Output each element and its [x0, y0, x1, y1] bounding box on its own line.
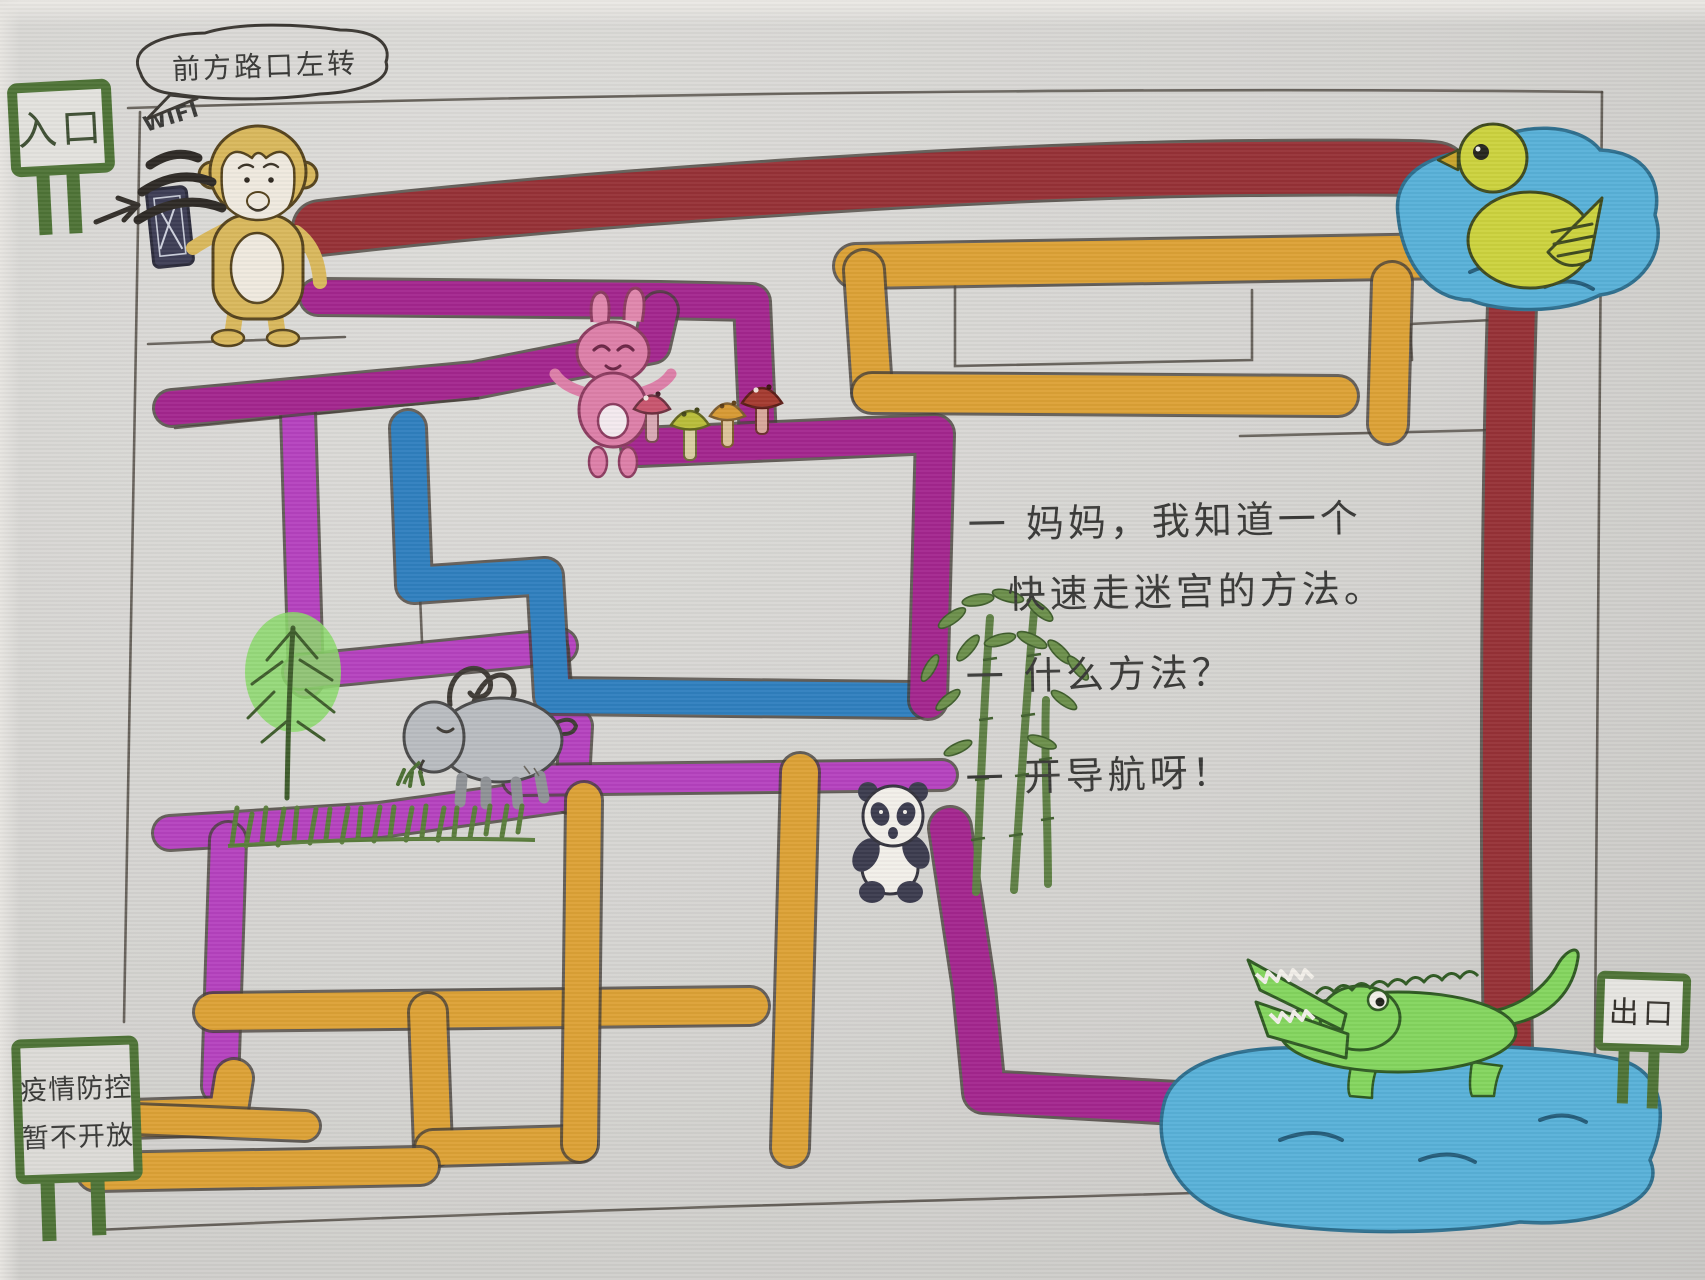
- entrance-sign-text: 入口: [16, 105, 106, 156]
- entrance-arrow-icon: [96, 198, 138, 222]
- dialogue-line-4: 一 开导航呀！: [965, 750, 1234, 801]
- closed-sign-line1: 疫情防控: [20, 1072, 133, 1107]
- magenta-path: [640, 434, 935, 700]
- panda: [847, 782, 936, 903]
- orange-path: [856, 256, 1452, 266]
- magenta-path: [640, 434, 935, 700]
- violet-path: [220, 840, 228, 1086]
- monkey-belly: [231, 233, 283, 303]
- dialogue-line-1: 一 妈妈，我知道一个: [967, 496, 1362, 547]
- orange-path: [213, 1006, 750, 1012]
- monkey: [193, 126, 320, 346]
- orange-path: [872, 393, 1338, 396]
- maroon-path: [320, 167, 1448, 228]
- orange-path: [580, 800, 584, 1144]
- dialogue-line-3: 一 什么方法？: [965, 650, 1234, 699]
- rabbit-ear: [591, 292, 609, 324]
- orange-path: [1388, 282, 1392, 424]
- rabbit-belly: [598, 404, 628, 438]
- exit-sign-text: 出口: [1608, 995, 1677, 1032]
- violet-path: [518, 775, 942, 780]
- rabbit-ear: [624, 288, 644, 322]
- maroon-path: [1506, 305, 1512, 1052]
- speech-bubble-text: 前方路口左转: [172, 47, 359, 86]
- maze-drawing-photo: WIFI 前方路口左转 入口 疫情防控 暂不开放: [0, 0, 1705, 1280]
- duck-eye: [1473, 144, 1489, 160]
- entrance-sign: 入口: [12, 84, 114, 237]
- orange-path: [428, 1012, 433, 1148]
- panda-mouth: [888, 827, 898, 839]
- orange-path: [790, 772, 800, 1148]
- orange-path: [433, 1144, 578, 1148]
- tree: [245, 612, 341, 798]
- closed-sign-line2: 暂不开放: [21, 1120, 134, 1155]
- maze-canvas: WIFI 前方路口左转 入口 疫情防控 暂不开放: [0, 0, 1705, 1280]
- dialogue-line-2: 快速走迷宫的方法。: [1007, 566, 1386, 617]
- goat-head: [404, 702, 464, 772]
- mushroom: [671, 411, 709, 430]
- closed-sign: 疫情防控 暂不开放: [16, 1040, 141, 1242]
